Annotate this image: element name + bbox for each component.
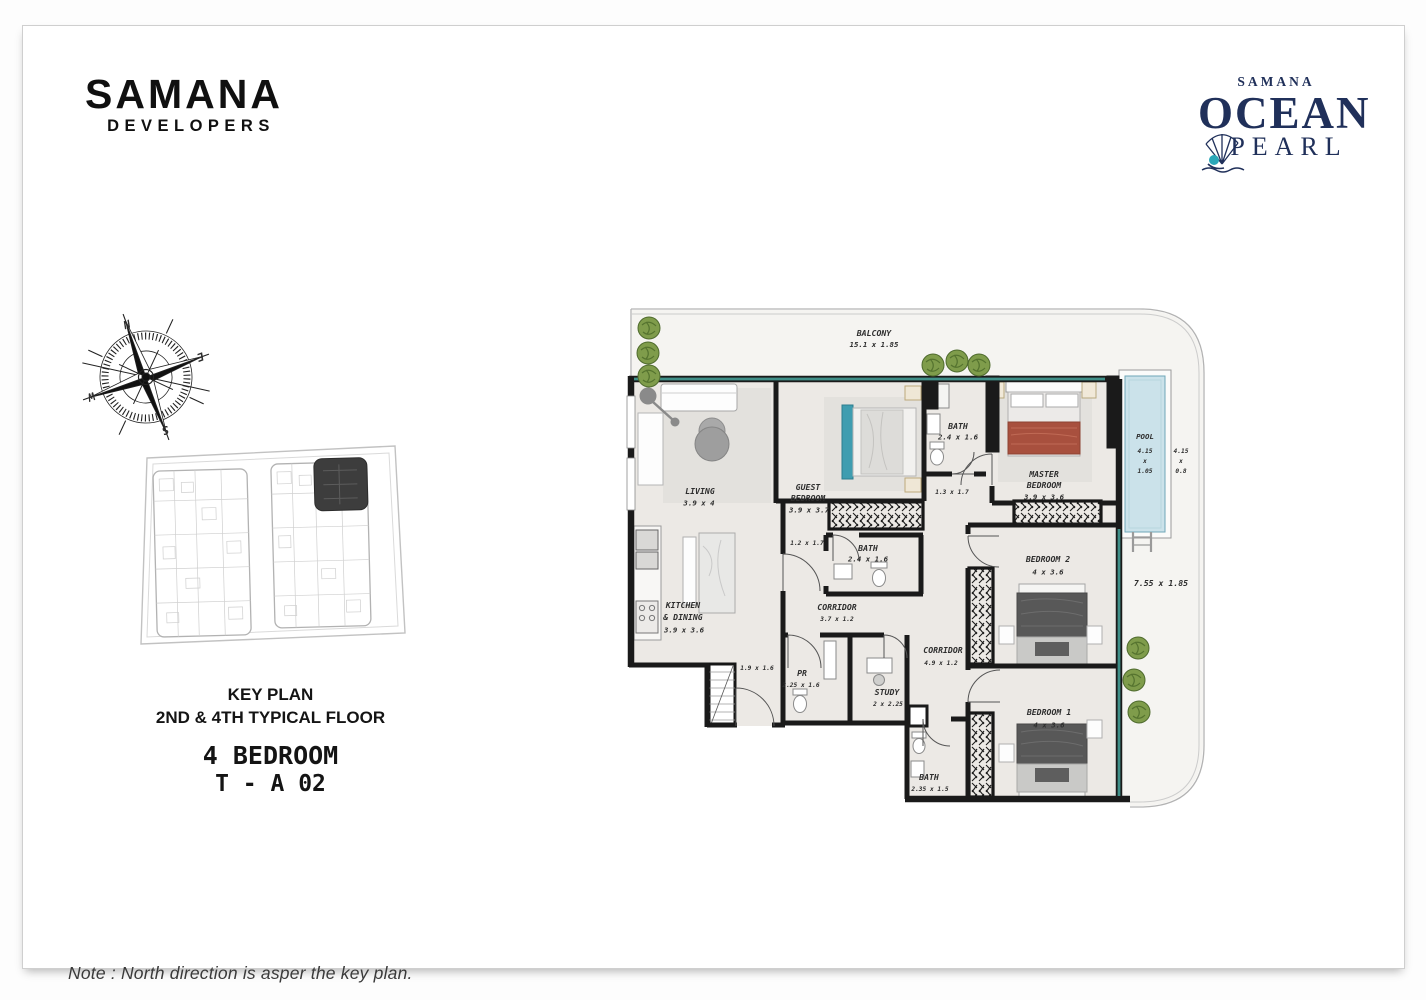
balcony-label: BALCONY — [856, 328, 893, 338]
key-plan-title: KEY PLAN — [133, 684, 408, 707]
page-card: SAMANA DEVELOPERS SAMANA OCEAN PEARL — [22, 25, 1405, 969]
pearl-dot — [1209, 155, 1219, 165]
entry-stair — [709, 664, 735, 726]
floor-plan: BALCONY 15.1 x 1.85 LIVING 3.9 x 4 GUEST… — [621, 296, 1221, 821]
corridor-label: CORRIDOR — [817, 602, 857, 612]
master-bedroom-dims: 3.9 x 3.6 — [1023, 493, 1065, 502]
foyer-dim: 1.2 x 1.7 — [790, 540, 824, 547]
compass-north-label: N — [121, 316, 133, 331]
kitchen-label-2: & DINING — [662, 612, 703, 622]
guest-bedroom-label-1: GUEST — [796, 482, 822, 492]
corridor-right-label: CORRIDOR — [923, 645, 963, 655]
master-bedroom-label-1: MASTER — [1028, 469, 1059, 479]
corridor-dims: 3.7 x 1.2 — [819, 616, 854, 623]
balcony-right-dims: 7.55 x 1.85 — [1134, 578, 1188, 588]
bedroom1-label: BEDROOM 1 — [1026, 707, 1071, 717]
bath-mid-dims: 2.4 x 1.6 — [847, 555, 889, 564]
bath-mid-label: BATH — [857, 543, 878, 553]
balcony-dims: 15.1 x 1.85 — [850, 340, 899, 349]
north-note: Note : North direction is asper the key … — [68, 963, 413, 984]
pool-dim-w: 4.15 — [1138, 448, 1153, 455]
bedroom1-dims: 4 x 3.6 — [1033, 721, 1065, 730]
guest-bedroom-dims: 3.9 x 3.7 — [788, 506, 830, 515]
bath-top-label: BATH — [947, 421, 968, 431]
pool-outer-dim-w: 4.15 — [1174, 448, 1189, 455]
entry-dim: 1.9 x 1.6 — [740, 665, 774, 672]
living-label: LIVING — [685, 486, 715, 496]
kitchen-label-1: KITCHEN — [665, 600, 702, 610]
compass-west-label: W — [85, 389, 97, 404]
corridor-right-dims: 4.9 x 1.2 — [924, 660, 958, 667]
shell-pearl-icon — [1198, 130, 1250, 176]
pool-dim-x: x — [1142, 458, 1147, 465]
pool-dim-h: 1.05 — [1138, 468, 1153, 475]
key-plan-graphic — [131, 436, 421, 666]
pool-label: POOL — [1136, 432, 1154, 441]
project-logo: SAMANA OCEAN PEARL — [1198, 74, 1354, 162]
key-plan-subtitle: 2ND & 4TH TYPICAL FLOOR — [133, 707, 408, 730]
master-bedroom-label-2: BEDROOM — [1026, 480, 1063, 490]
hall-dim: 1.3 x 1.7 — [935, 489, 969, 496]
pr-dims: 2.25 x 1.6 — [781, 682, 820, 689]
bath-top-dims: 2.4 x 1.6 — [937, 433, 979, 442]
compass-rose: N S W E — [71, 302, 221, 452]
kitchen-dims: 3.9 x 3.6 — [663, 626, 705, 635]
guest-bedroom-label-2: BEDROOM — [790, 493, 827, 503]
living-dims: 3.9 x 4 — [682, 499, 715, 508]
developer-tagline: DEVELOPERS — [85, 117, 283, 136]
developer-name: SAMANA — [85, 74, 283, 115]
unit-type: 4 BEDROOM — [133, 740, 408, 771]
bath-bottom-dims: 2.35 x 1.5 — [910, 786, 949, 793]
pool-outer-dim-h: 0.8 — [1175, 468, 1186, 475]
bath-bottom-label: BATH — [918, 772, 939, 782]
unit-code: T - A 02 — [133, 771, 408, 799]
compass-east-label: E — [195, 349, 206, 364]
pool-outer-dim-x: x — [1178, 458, 1183, 465]
study-label: STUDY — [875, 687, 901, 697]
pr-label: PR — [797, 668, 807, 678]
bedroom2-label: BEDROOM 2 — [1025, 554, 1070, 564]
key-plan-caption: KEY PLAN 2ND & 4TH TYPICAL FLOOR 4 BEDRO… — [133, 684, 408, 799]
study-dims: 2 x 2.25 — [872, 701, 903, 708]
bedroom2-dims: 4 x 3.6 — [1032, 568, 1064, 577]
developer-logo: SAMANA DEVELOPERS — [85, 74, 283, 136]
brochure-page: SAMANA DEVELOPERS SAMANA OCEAN PEARL — [0, 0, 1426, 1000]
